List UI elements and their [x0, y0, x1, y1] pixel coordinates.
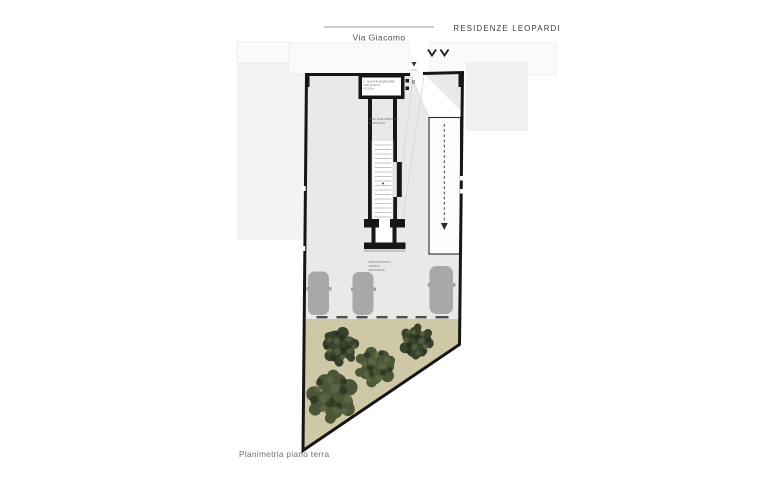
- window-opening: [302, 186, 305, 191]
- window-opening: [302, 246, 305, 251]
- door-mark: [412, 81, 415, 82]
- vestibule-shadow: [364, 250, 406, 252]
- window-opening: [460, 189, 463, 194]
- car-mirror: [453, 283, 455, 287]
- car-mirror: [374, 288, 376, 292]
- door-jamb: [406, 79, 410, 83]
- stair-block-label-line: H 3,00 m: [364, 87, 375, 91]
- ramp: [429, 118, 461, 255]
- car-mirror: [329, 287, 331, 291]
- stair-shaft: VANO SCALA RISALITA QUOTA ±0,00: [368, 99, 402, 226]
- stair-note-line: QUOTA ±0,00: [369, 121, 386, 125]
- car-mirror: [351, 288, 353, 292]
- plan-canvas: C. SCALA E ASCENSORE SUP. 12,40 m² H 3,0…: [0, 0, 764, 492]
- stair-landing-mark: [382, 183, 384, 185]
- parked-car: [308, 272, 329, 316]
- wall-pier: [305, 74, 310, 87]
- neighbor-building: [237, 42, 289, 63]
- parking-note-line: QUOTA ±0,00: [369, 268, 386, 272]
- car-mirror: [307, 287, 309, 291]
- stair-block-label-line: SUP. 12,40 m²: [364, 83, 381, 87]
- project-title: RESIDENZE LEOPARDI: [454, 24, 561, 33]
- entrance-point-icon: [412, 62, 417, 67]
- parked-car: [430, 266, 454, 314]
- neighbor-building: [237, 63, 308, 240]
- parking-note-line: 125,00 m²: [369, 264, 381, 268]
- street-label: Via Giacomo: [353, 33, 406, 43]
- caption: Planimetria piano terra: [239, 449, 329, 459]
- door-jamb: [406, 87, 410, 91]
- car-mirror: [428, 283, 430, 287]
- door-mark: [412, 83, 415, 84]
- neighbor-building: [289, 43, 409, 74]
- parking-note-line: SUP. POSTI AUTO: [369, 260, 391, 264]
- entrance-level: ±0,00: [411, 69, 418, 72]
- stair-block-label-line: C. SCALA E ASCENSORE: [364, 80, 395, 84]
- stair-note-line: VANO SCALA RISALITA: [369, 117, 398, 121]
- neighbor-building: [466, 62, 528, 131]
- wall-pier: [459, 72, 464, 87]
- parked-car: [353, 272, 374, 315]
- window-opening: [460, 176, 463, 181]
